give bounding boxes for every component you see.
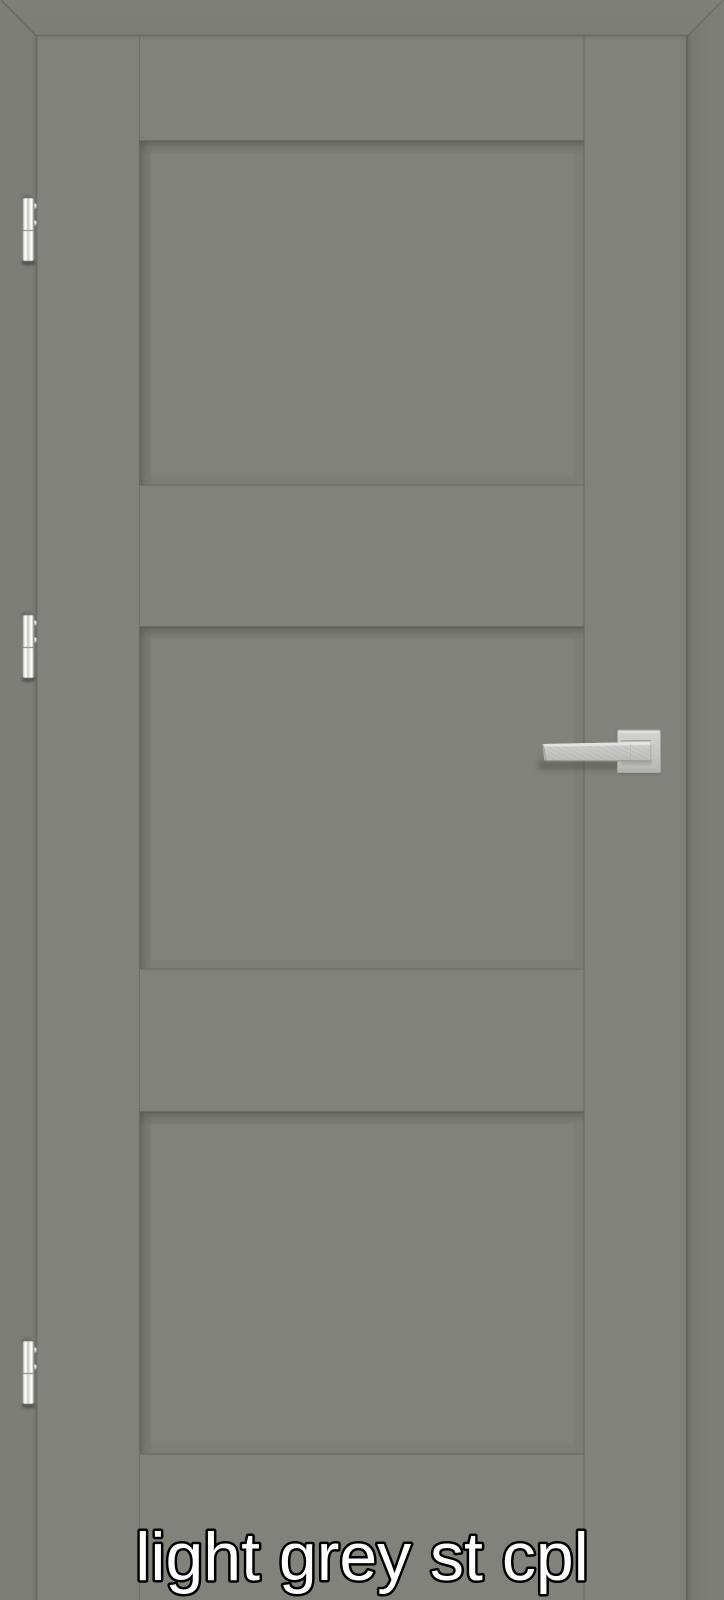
- svg-text:light grey st cpl: light grey st cpl: [135, 1519, 589, 1595]
